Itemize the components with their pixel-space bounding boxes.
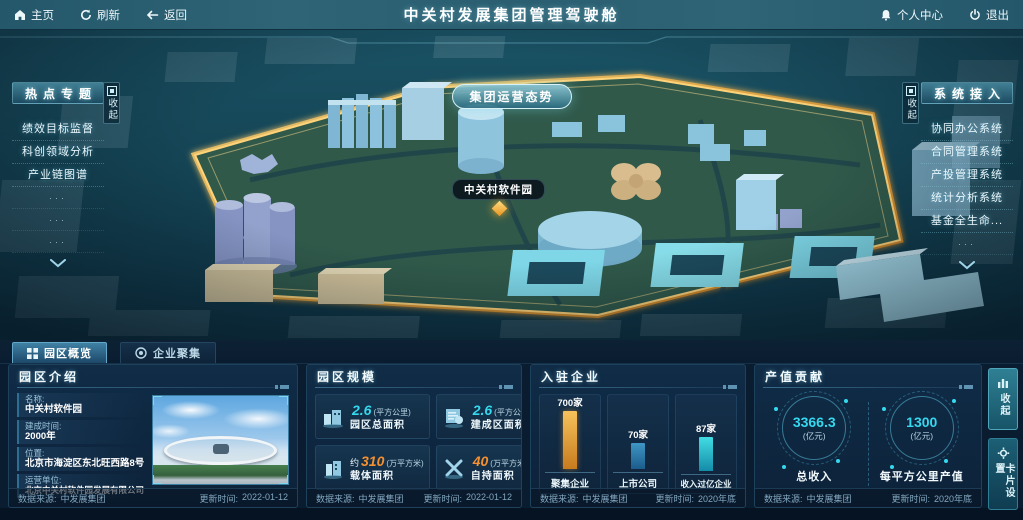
update-value: 2020年底: [934, 492, 972, 505]
park-photo: [152, 395, 289, 485]
system-item-1[interactable]: 协同办公系统: [921, 118, 1013, 141]
stat-value: 2.6: [352, 402, 371, 418]
hot-topic-item-1[interactable]: 绩效目标监督: [12, 118, 104, 141]
group-operation-button[interactable]: 集团运营态势: [451, 84, 571, 109]
park-scale-footer: 数据来源:中发展集团 更新时间:2022-01-12: [307, 488, 521, 507]
home-icon: [14, 9, 26, 21]
update-value: 2022-01-12: [466, 492, 512, 505]
tower-icon: [321, 456, 345, 480]
stat-unit: (万平方米): [490, 459, 522, 468]
buildings-icon: [321, 405, 345, 429]
field-operator-label: 运营单位:: [25, 475, 144, 485]
source-label: 数据来源:: [18, 492, 57, 505]
tab-park-overview-label: 园区概览: [44, 345, 92, 361]
enterprises-footer: 数据来源:中发展集团 更新时间:2020年底: [531, 488, 745, 507]
hot-topics-title: 热点专题: [12, 82, 104, 104]
source-value: 中发展集团: [61, 492, 106, 505]
hot-topic-item-2[interactable]: 科创领域分析: [12, 141, 104, 164]
output-value-title: 产值贡献: [765, 368, 825, 385]
bar-listed: [631, 443, 645, 469]
card-settings-button[interactable]: 卡片设置: [988, 438, 1018, 510]
stat-unit: (平方公里): [373, 408, 410, 417]
profile-label: 个人中心: [897, 7, 943, 23]
field-name-label: 名称:: [25, 394, 144, 404]
refresh-icon: [80, 9, 92, 21]
hot-topics-ellipsis-1: ···: [12, 187, 104, 209]
enterprises-panel: 入驻企业 700家 聚集企业 70家 上市公司 87家 收入过亿企业: [530, 364, 746, 508]
bar-baseline: [681, 474, 731, 475]
bar-cluster: [563, 411, 577, 469]
revenue-value: 3366.3: [793, 415, 836, 430]
park-marker-label[interactable]: 中关村软件园: [452, 179, 545, 200]
stat-label: 建成区面积: [471, 420, 522, 432]
tab-enterprise-cluster[interactable]: 企业聚集: [120, 342, 216, 363]
stat-value: 40: [473, 453, 489, 469]
per-km-ring: 1300 (亿元): [890, 396, 954, 460]
systems-ellipsis: ···: [921, 233, 1013, 255]
home-label: 主页: [31, 7, 54, 23]
system-item-2[interactable]: 合同管理系统: [921, 141, 1013, 164]
hot-topics-collapse-button[interactable]: 收起: [103, 82, 120, 124]
collapse-panel-icon: [107, 86, 117, 96]
stat-self-hold-area: 40(万平方米) 自持面积: [436, 445, 522, 490]
system-item-4[interactable]: 统计分析系统: [921, 187, 1013, 210]
tab-park-overview[interactable]: 园区概览: [12, 342, 107, 363]
park-intro-panel: 园区介绍 名称: 中关村软件园 建成时间: 2000年 位置: 北京市海淀区东北…: [8, 364, 298, 508]
per-km-value: 1300: [906, 415, 937, 430]
bar-chart-icon: [997, 377, 1009, 389]
photo-corner-bracket: [152, 475, 162, 485]
stat-built-area: 2.6(平方公里) 建成区面积: [436, 394, 522, 439]
round-tower-cluster: [213, 193, 297, 275]
refresh-button[interactable]: 刷新: [80, 7, 120, 23]
top-nav-right: 个人中心 退出: [709, 7, 1009, 23]
update-label: 更新时间:: [423, 492, 462, 505]
cluster-icon: [135, 347, 147, 359]
revenue-unit: (亿元): [803, 430, 826, 442]
stat-prefix: 约: [350, 458, 359, 468]
hot-topics-ellipsis-3: ···: [12, 231, 104, 253]
dashboard-cards-row: 园区介绍 名称: 中关村软件园 建成时间: 2000年 位置: 北京市海淀区东北…: [0, 364, 1023, 508]
stat-total-revenue: 3366.3 (亿元) 总收入: [761, 396, 868, 492]
panel-title-rule: [763, 387, 973, 388]
bottom-tab-bar: 园区概览 企业聚集: [0, 340, 1023, 364]
panel-title-rule: [539, 387, 737, 388]
systems-title: 系统接入: [921, 82, 1013, 104]
stat-label: 自持面积: [471, 471, 522, 483]
systems-scroll-down-icon[interactable]: [959, 261, 975, 270]
power-icon: [969, 9, 981, 21]
revenue-ring: 3366.3 (亿元): [782, 396, 846, 460]
photo-ring-building: [213, 444, 229, 455]
bar-group-billion: 87家 收入过亿企业: [675, 394, 737, 494]
profile-button[interactable]: 个人中心: [880, 7, 943, 23]
output-value-footer: 数据来源:中发展集团 更新时间:2020年底: [755, 488, 981, 507]
output-value-panel: 产值贡献 3366.3 (亿元) 总收入 1300 (亿元) 每平方公里产值 数…: [754, 364, 982, 508]
hot-topic-item-3[interactable]: 产业链图谱: [12, 164, 104, 187]
source-label: 数据来源:: [316, 492, 355, 505]
stat-value: 310: [361, 453, 384, 469]
cards-collapse-button[interactable]: 收起: [988, 368, 1018, 430]
bar-value-label: 70家: [628, 427, 648, 441]
source-value: 中发展集团: [359, 492, 404, 505]
systems-panel: 系统接入 协同办公系统 合同管理系统 产投管理系统 统计分析系统 基金全生命..…: [921, 82, 1013, 270]
systems-collapse-label: 收起: [906, 98, 916, 121]
card-settings-label: 卡片设置: [993, 463, 1013, 509]
system-item-5[interactable]: 基金全生命...: [921, 210, 1013, 233]
dashboard-root: { "topbar": { "home": "主页", "refresh": "…: [0, 0, 1023, 520]
hot-topics-list: 绩效目标监督 科创领域分析 产业链图谱 ··· ··· ···: [12, 118, 104, 268]
back-label: 返回: [164, 7, 187, 23]
park-scale-panel: 园区规模 2.6(平方公里) 园区总面积 2.6(平方公里) 建成区面积: [306, 364, 522, 508]
systems-list: 协同办公系统 合同管理系统 产投管理系统 统计分析系统 基金全生命... ···: [921, 118, 1013, 270]
revenue-label: 总收入: [796, 468, 832, 484]
stat-unit: (万平方米): [386, 459, 423, 468]
stat-output-per-km: 1300 (亿元) 每平方公里产值: [869, 396, 976, 492]
logout-button[interactable]: 退出: [969, 7, 1009, 23]
bar-billion: [699, 437, 713, 471]
hot-topics-scroll-down-icon[interactable]: [50, 259, 66, 268]
map-3d-scene[interactable]: 集团运营态势 中关村软件园 热点专题 绩效目标监督 科创领域分析 产业链图谱 ·…: [0, 30, 1023, 340]
gear-icon: [997, 447, 1010, 459]
bar-group-listed: 70家 上市公司: [607, 394, 669, 494]
stat-value: 2.6: [473, 402, 492, 418]
per-km-label: 每平方公里产值: [880, 468, 964, 484]
bar-value-label: 87家: [696, 421, 716, 435]
photo-corner-bracket: [279, 475, 289, 485]
bottom-edge-strip: [0, 508, 1023, 520]
panel-title-rule: [17, 387, 289, 388]
field-location: 位置: 北京市海淀区东北旺西路8号: [17, 447, 144, 471]
systems-collapse-button[interactable]: 收起: [902, 82, 919, 124]
panel-title-rule: [315, 387, 513, 388]
park-scale-title: 园区规模: [317, 368, 377, 385]
stat-label: 园区总面积: [350, 420, 411, 432]
top-bar: 主页 刷新 返回 中关村发展集团管理驾驶舱 个人中心 退出: [0, 0, 1023, 30]
update-value: 2022-01-12: [242, 492, 288, 505]
bell-icon: [880, 9, 892, 21]
striped-towers: [328, 94, 396, 148]
field-built-time: 建成时间: 2000年: [17, 420, 144, 444]
field-built-time-label: 建成时间:: [25, 421, 144, 431]
source-label: 数据来源:: [764, 492, 803, 505]
bar-group-cluster: 700家 聚集企业: [539, 394, 601, 494]
update-value: 2020年底: [698, 492, 736, 505]
refresh-label: 刷新: [97, 7, 120, 23]
home-button[interactable]: 主页: [14, 7, 54, 23]
hot-topics-collapse-label: 收起: [107, 98, 117, 121]
crossed-arrows-icon: [442, 456, 466, 480]
source-value: 中发展集团: [807, 492, 852, 505]
per-km-unit: (亿元): [910, 430, 933, 442]
field-built-time-value: 2000年: [25, 431, 144, 442]
hot-topics-panel: 热点专题 绩效目标监督 科创领域分析 产业链图谱 ··· ··· ···: [12, 82, 104, 268]
update-label: 更新时间:: [199, 492, 238, 505]
scale-stats-grid: 2.6(平方公里) 园区总面积 2.6(平方公里) 建成区面积 约310(万平方…: [307, 388, 521, 490]
stat-total-area: 2.6(平方公里) 园区总面积: [315, 394, 430, 439]
enterprises-bar-chart: 700家 聚集企业 70家 上市公司 87家 收入过亿企业: [531, 388, 745, 494]
field-name: 名称: 中关村软件园: [17, 393, 144, 417]
photo-corner-bracket: [152, 395, 162, 405]
cylinder-tower: [458, 104, 504, 174]
hot-topics-ellipsis-2: ···: [12, 209, 104, 231]
blueprint-icon: [442, 405, 466, 429]
top-nav-left: 主页 刷新 返回: [14, 7, 314, 23]
bar-baseline: [545, 472, 595, 473]
field-location-value: 北京市海淀区东北旺西路8号: [25, 458, 144, 469]
bar-baseline: [613, 472, 663, 473]
collapse-panel-icon: [906, 86, 916, 96]
update-label: 更新时间:: [655, 492, 694, 505]
park-intro-fields: 名称: 中关村软件园 建成时间: 2000年 位置: 北京市海淀区东北旺西路8号…: [17, 393, 144, 501]
back-button[interactable]: 返回: [146, 7, 187, 23]
logout-label: 退出: [986, 7, 1009, 23]
field-name-value: 中关村软件园: [25, 404, 144, 415]
stat-carrier-area: 约310(万平方米) 载体面积: [315, 445, 430, 490]
source-label: 数据来源:: [540, 492, 579, 505]
field-location-label: 位置:: [25, 448, 144, 458]
back-arrow-icon: [146, 9, 159, 21]
cards-collapse-label: 收起: [998, 393, 1008, 417]
tab-enterprise-cluster-label: 企业聚集: [153, 345, 201, 361]
enterprises-title: 入驻企业: [541, 368, 601, 385]
system-item-3[interactable]: 产投管理系统: [921, 164, 1013, 187]
park-intro-footer: 数据来源:中发展集团 更新时间:2022-01-12: [9, 488, 297, 507]
stat-label: 载体面积: [350, 471, 424, 483]
bar-value-label: 700家: [557, 395, 582, 409]
app-title: 中关村发展集团管理驾驶舱: [314, 4, 709, 25]
grid-icon: [27, 348, 38, 359]
park-intro-title: 园区介绍: [19, 368, 79, 385]
stat-unit: (平方公里): [494, 408, 522, 417]
photo-corner-bracket: [279, 395, 289, 405]
park-intro-body: 名称: 中关村软件园 建成时间: 2000年 位置: 北京市海淀区东北旺西路8号…: [9, 388, 297, 501]
source-value: 中发展集团: [583, 492, 628, 505]
update-label: 更新时间:: [891, 492, 930, 505]
output-stats: 3366.3 (亿元) 总收入 1300 (亿元) 每平方公里产值: [755, 388, 981, 492]
